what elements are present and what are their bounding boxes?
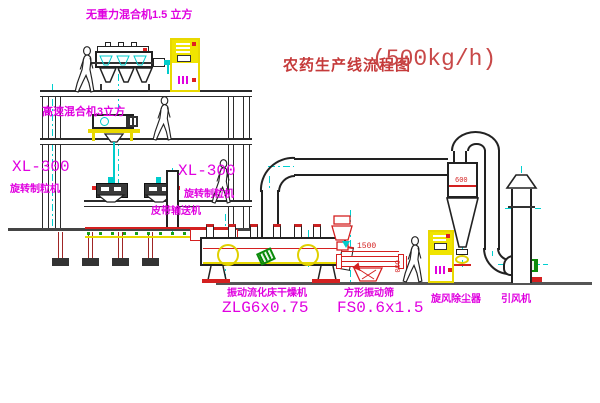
exhaust-stack [511, 189, 532, 283]
foundation-cap [82, 258, 99, 266]
dryer-port [250, 224, 258, 238]
motor-symbol [178, 76, 190, 84]
label-belt-conveyor: 皮带输送机 [151, 207, 201, 218]
foundation-cap [112, 258, 129, 266]
diagram-title-capacity: (500kg/h) [372, 46, 496, 72]
dryer-sight-glass [297, 244, 319, 266]
cyclone-valve-yellow [455, 255, 469, 264]
label-fan: 引风机 [501, 295, 531, 306]
sieve-dim-line [341, 251, 399, 252]
dryer-port [313, 224, 321, 238]
floor-beam-top [40, 90, 252, 97]
stack-flange [508, 206, 535, 208]
dryer-port [294, 224, 302, 238]
indicator-dot [192, 78, 196, 82]
flow-diagram-canvas: 600 1500 [0, 0, 600, 403]
mixer-stub [118, 42, 124, 47]
granulator-red-mark [92, 186, 96, 190]
mixer-motor [126, 116, 138, 127]
label-granulator-right-model: XL-300 [178, 162, 236, 180]
dryer-foot [312, 279, 340, 283]
sieve-deck [341, 256, 399, 267]
cyclone-dim-text: 600 [455, 177, 468, 185]
cyclone-dim-line [449, 185, 476, 187]
person-figure [74, 46, 100, 93]
foundation-cap [52, 258, 69, 266]
mixer-pipe-cyan [167, 65, 169, 74]
floor-beam-mid [40, 138, 252, 145]
label-granulator-right-name: 旋转制粒机 [184, 190, 234, 201]
mixer-leg [148, 84, 150, 92]
dryer-port [206, 224, 214, 238]
sieve-dim-text-v: 600 [392, 260, 400, 273]
label-sieve-name: 方形振动筛 [344, 289, 394, 300]
label-high-speed-mixer: 高速混合机3立方 [42, 107, 125, 119]
indicator-dot [448, 268, 452, 272]
motor-symbol [435, 266, 446, 274]
gravity-mixer-hoppers [98, 68, 154, 84]
foundation-post [58, 232, 63, 259]
dryer-port [273, 224, 281, 238]
label-gravity-mixer: 无重力混合机1.5 立方 [86, 10, 192, 22]
duct-vertical-fan [484, 150, 500, 250]
granulator-cone [96, 195, 126, 203]
label-dryer-model: ZLG6x0.75 [222, 299, 308, 317]
mixer-funnels-cyan [98, 55, 150, 67]
granulator-stub-cyan [156, 177, 161, 183]
duct-horizontal [294, 158, 448, 176]
mixer-stub [131, 42, 137, 47]
duct-elbow-left [259, 156, 299, 192]
label-granulator-left-name: 旋转制粒机 [10, 185, 60, 196]
control-cabinet-top [170, 38, 200, 92]
mixer-leg [100, 84, 102, 92]
label-dryer-name: 振动流化床干燥机 [227, 289, 307, 300]
person-figure [152, 96, 177, 141]
person-figure [402, 236, 428, 283]
cyclone-valve-base [452, 264, 471, 266]
dryer-port [228, 224, 236, 238]
building-column [243, 90, 250, 228]
label-cyclone: 旋风除尘器 [431, 295, 481, 306]
foundation-cap [142, 258, 159, 266]
label-granulator-left-model: XL-300 [12, 158, 70, 176]
cabinet-panel [172, 40, 198, 63]
label-sieve-model: FS0.6x1.5 [337, 299, 423, 317]
dryer-sight-glass [217, 244, 239, 266]
dryer-foot [202, 279, 230, 283]
mixer-stub [105, 42, 111, 47]
mixer-leg-yellow [130, 133, 133, 141]
control-cabinet-right [428, 230, 454, 283]
feed-pipe-cyan [113, 142, 115, 184]
cabinet-panel [430, 232, 452, 255]
flow-arrow-cyan [342, 241, 350, 248]
stack-cap [506, 172, 537, 190]
sieve-dim-text: 1500 [357, 242, 376, 251]
granulator-stub-cyan [108, 177, 113, 183]
mixer-leg-yellow [92, 133, 95, 141]
